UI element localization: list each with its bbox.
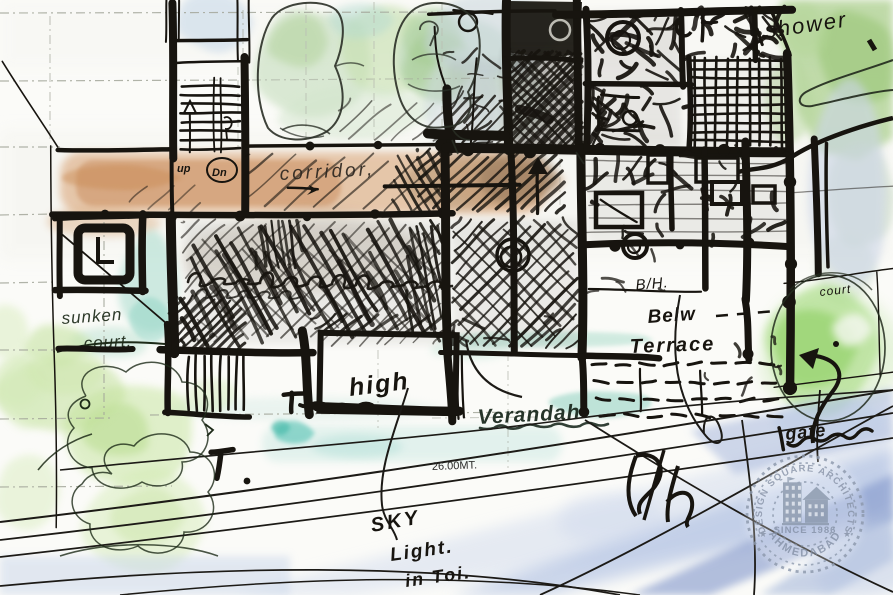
svg-text:26.00MT.: 26.00MT. xyxy=(432,459,478,473)
svg-text:Belw: Belw xyxy=(647,304,697,328)
svg-text:Dn: Dn xyxy=(212,167,227,179)
svg-text:★: ★ xyxy=(843,529,851,539)
svg-text:Terrace: Terrace xyxy=(629,333,715,358)
svg-text:B/H.: B/H. xyxy=(635,274,670,294)
svg-text:SINCE 1986: SINCE 1986 xyxy=(774,525,837,536)
svg-text:★: ★ xyxy=(759,529,767,539)
svg-text:up: up xyxy=(177,163,191,175)
